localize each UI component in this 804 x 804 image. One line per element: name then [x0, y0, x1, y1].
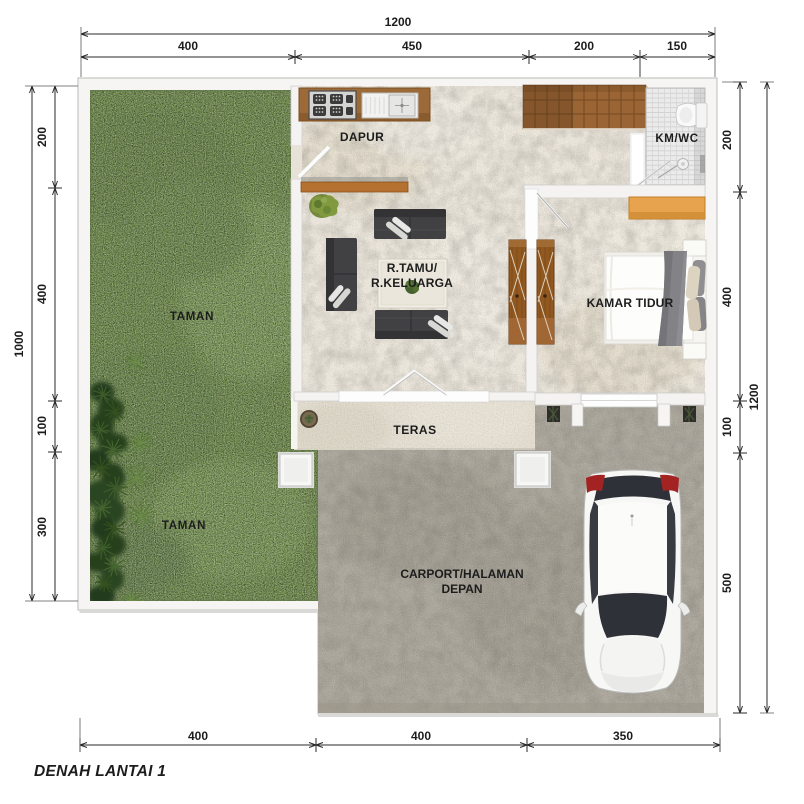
svg-text:TERAS: TERAS — [393, 423, 436, 437]
svg-text:150: 150 — [667, 39, 687, 53]
svg-text:400: 400 — [188, 729, 208, 743]
svg-text:KAMAR TIDUR: KAMAR TIDUR — [587, 296, 674, 310]
svg-text:400: 400 — [35, 284, 49, 304]
svg-text:DAPUR: DAPUR — [340, 130, 384, 144]
svg-text:CARPORT/HALAMAN: CARPORT/HALAMAN — [400, 567, 523, 581]
svg-text:200: 200 — [574, 39, 594, 53]
svg-text:450: 450 — [402, 39, 422, 53]
svg-text:350: 350 — [613, 729, 633, 743]
svg-text:DEPAN: DEPAN — [441, 582, 482, 596]
svg-text:200: 200 — [35, 127, 49, 147]
svg-text:R.TAMU/: R.TAMU/ — [387, 261, 438, 275]
svg-text:TAMAN: TAMAN — [162, 520, 206, 532]
svg-text:100: 100 — [35, 416, 49, 436]
svg-text:KM/WC: KM/WC — [655, 133, 698, 145]
svg-text:1200: 1200 — [385, 15, 412, 29]
svg-text:1000: 1000 — [12, 330, 26, 357]
svg-text:400: 400 — [720, 287, 734, 307]
svg-text:TAMAN: TAMAN — [170, 311, 214, 323]
svg-text:300: 300 — [35, 517, 49, 537]
svg-text:500: 500 — [720, 573, 734, 593]
svg-text:1200: 1200 — [747, 383, 761, 410]
svg-text:200: 200 — [720, 130, 734, 150]
svg-text:400: 400 — [178, 39, 198, 53]
svg-text:DENAH LANTAI 1: DENAH LANTAI 1 — [34, 763, 166, 780]
svg-text:R.KELUARGA: R.KELUARGA — [371, 276, 453, 290]
svg-text:100: 100 — [720, 417, 734, 437]
svg-text:400: 400 — [411, 729, 431, 743]
